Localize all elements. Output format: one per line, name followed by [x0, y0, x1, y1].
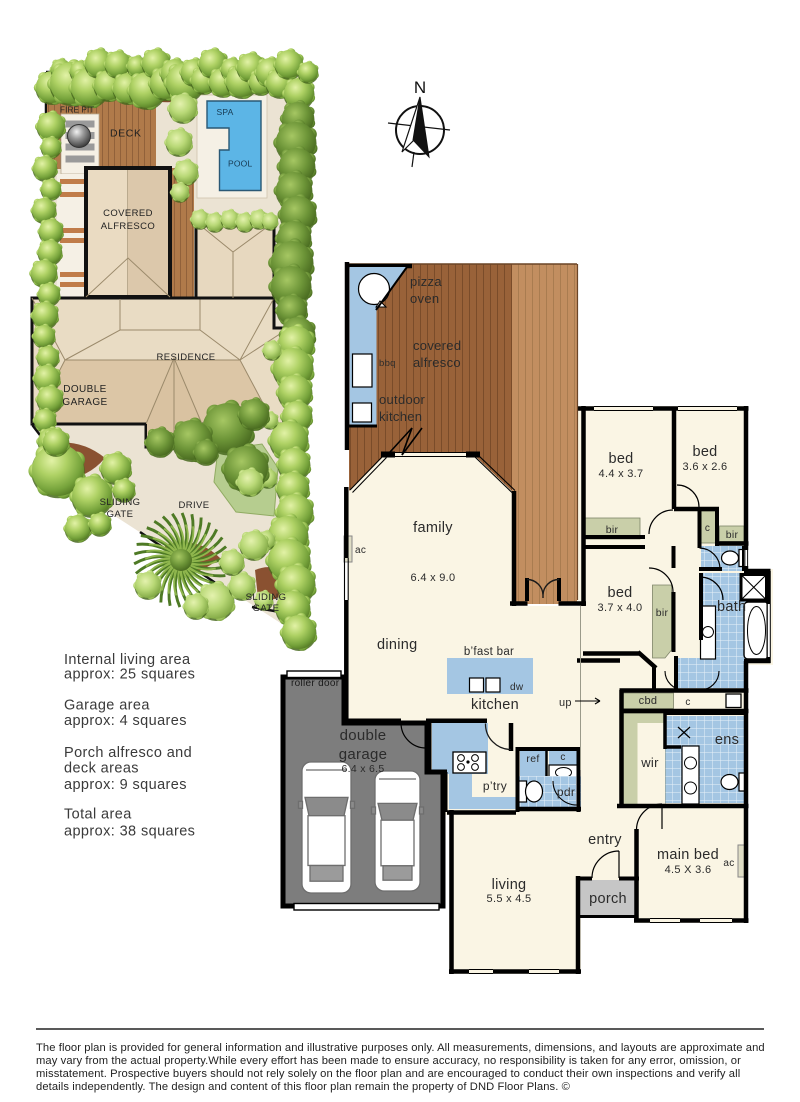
svg-text:ref: ref	[526, 753, 539, 765]
svg-text:N: N	[414, 78, 426, 97]
svg-text:entry: entry	[588, 832, 622, 848]
svg-text:6.4 x 6.5: 6.4 x 6.5	[342, 763, 385, 775]
svg-text:pizza: pizza	[410, 274, 442, 289]
svg-text:up: up	[559, 697, 572, 709]
svg-text:bir: bir	[606, 524, 619, 536]
svg-text:DRIVE: DRIVE	[178, 500, 209, 511]
svg-text:bed: bed	[608, 451, 633, 467]
svg-text:double: double	[340, 727, 387, 744]
svg-text:bed: bed	[607, 585, 632, 601]
svg-text:covered: covered	[413, 338, 461, 353]
svg-text:kitchen: kitchen	[379, 409, 422, 424]
svg-text:5.5 x 4.5: 5.5 x 4.5	[487, 893, 532, 905]
svg-text:dw: dw	[510, 682, 524, 693]
svg-text:3.6 x 2.6: 3.6 x 2.6	[683, 461, 728, 473]
svg-text:approx: 4 squares: approx: 4 squares	[64, 713, 187, 729]
svg-text:bbq: bbq	[379, 358, 396, 369]
svg-text:wir: wir	[640, 755, 659, 770]
svg-text:bath: bath	[717, 599, 746, 615]
svg-text:approx: 25 squares: approx: 25 squares	[64, 667, 195, 683]
svg-text:3.7 x 4.0: 3.7 x 4.0	[598, 602, 643, 614]
svg-text:SPA: SPA	[217, 107, 234, 117]
svg-text:GATE: GATE	[107, 509, 134, 520]
svg-text:SLIDING: SLIDING	[246, 592, 287, 603]
svg-text:c: c	[705, 523, 710, 534]
svg-text:c: c	[685, 697, 690, 708]
svg-text:kitchen: kitchen	[471, 697, 519, 713]
svg-text:main bed: main bed	[657, 847, 719, 863]
svg-text:Garage area: Garage area	[64, 698, 150, 714]
svg-text:FIRE PIT: FIRE PIT	[60, 106, 95, 115]
svg-text:living: living	[492, 877, 527, 893]
svg-text:ac: ac	[355, 545, 366, 556]
svg-text:COVERED: COVERED	[103, 208, 153, 219]
svg-text:6.4 x 9.0: 6.4 x 9.0	[411, 572, 456, 584]
svg-text:POOL: POOL	[228, 159, 252, 169]
svg-text:porch: porch	[589, 891, 627, 907]
svg-text:4.4 x 3.7: 4.4 x 3.7	[599, 468, 644, 480]
svg-text:roller door: roller door	[291, 678, 340, 689]
svg-text:deck areas: deck areas	[64, 761, 139, 777]
svg-text:SLIDING: SLIDING	[100, 497, 141, 508]
svg-text:garage: garage	[339, 746, 388, 763]
svg-text:4.5 X 3.6: 4.5 X 3.6	[665, 864, 712, 876]
svg-text:pdr: pdr	[557, 785, 575, 799]
svg-text:RESIDENCE: RESIDENCE	[156, 352, 215, 363]
svg-text:alfresco: alfresco	[413, 355, 461, 370]
svg-text:approx: 38 squares: approx: 38 squares	[64, 824, 195, 840]
svg-text:outdoor: outdoor	[379, 392, 426, 407]
svg-text:DECK: DECK	[110, 128, 142, 140]
svg-text:ens: ens	[715, 732, 739, 748]
svg-text:ac: ac	[723, 858, 734, 869]
svg-text:family: family	[413, 520, 453, 536]
svg-text:bir: bir	[656, 607, 669, 619]
svg-text:Porch alfresco and: Porch alfresco and	[64, 745, 192, 761]
svg-text:DOUBLE: DOUBLE	[63, 384, 107, 395]
svg-text:details independently. The des: details independently. The design and co…	[36, 1081, 571, 1093]
svg-text:c: c	[560, 752, 565, 763]
svg-text:p’try: p’try	[483, 779, 507, 793]
svg-text:approx: 9 squares: approx: 9 squares	[64, 777, 187, 793]
svg-text:Total area: Total area	[64, 807, 132, 823]
svg-text:bed: bed	[692, 444, 717, 460]
svg-text:dining: dining	[377, 637, 418, 653]
svg-text:GARAGE: GARAGE	[62, 397, 107, 408]
svg-text:GATE: GATE	[253, 603, 280, 614]
svg-text:misstatement. Prospective buye: misstatement. Prospective buyers should …	[36, 1068, 740, 1080]
svg-text:may vary from the actual prope: may vary from the actual property.While …	[36, 1055, 741, 1067]
svg-text:The floor plan is provided for: The floor plan is provided for general i…	[36, 1042, 765, 1054]
svg-text:oven: oven	[410, 291, 439, 306]
svg-text:cbd: cbd	[639, 695, 658, 707]
svg-text:bir: bir	[726, 529, 739, 541]
svg-text:ALFRESCO: ALFRESCO	[101, 221, 155, 232]
svg-text:b’fast bar: b’fast bar	[464, 646, 514, 658]
